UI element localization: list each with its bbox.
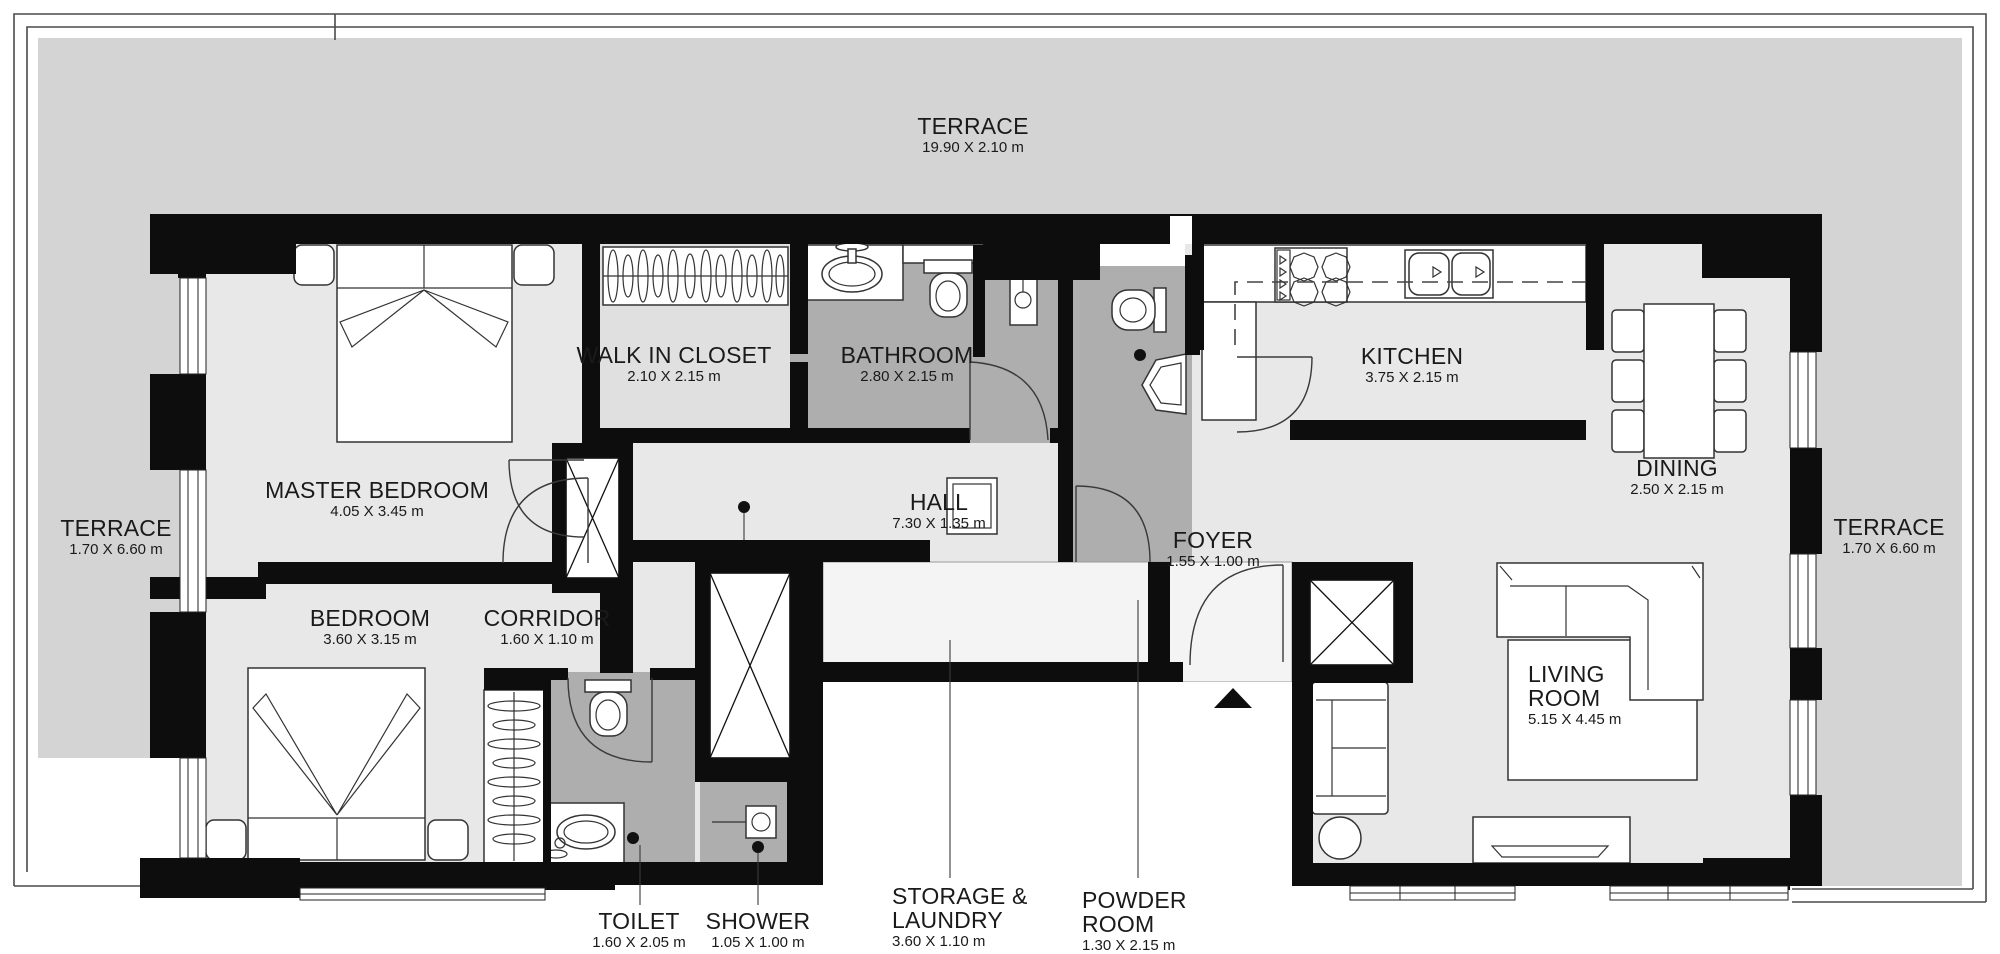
stove-icon [1275, 248, 1350, 306]
sink-icon [545, 803, 624, 863]
tv-console [1473, 817, 1630, 863]
side-table [1319, 817, 1361, 859]
dining-set [1612, 304, 1746, 458]
dining-table [1644, 304, 1714, 458]
walkin-closet-hangers [603, 247, 788, 305]
nightstand [514, 245, 554, 285]
nightstand [206, 820, 246, 860]
floor-plan-drawing [0, 0, 2000, 954]
loveseat-sofa [1312, 682, 1388, 814]
shower-head-icon [746, 806, 776, 838]
bedroom-closet [484, 690, 545, 863]
toilet-icon [924, 260, 972, 317]
service-shaft-icon [552, 443, 633, 593]
toilet-icon [1112, 288, 1166, 332]
shower-head-icon [1010, 278, 1037, 325]
washing-machine-icon [947, 478, 997, 534]
nightstand [294, 245, 334, 285]
floor-plan-canvas: TERRACE 19.90 X 2.10 m TERRACE 1.70 X 6.… [0, 0, 2000, 954]
nightstand [428, 820, 468, 860]
stair-shaft-icon [695, 555, 823, 782]
bedroom-furniture [206, 668, 545, 863]
elevator-icon [1292, 562, 1413, 683]
toilet-icon [585, 680, 631, 736]
kitchen-sink-icon [1405, 250, 1493, 298]
